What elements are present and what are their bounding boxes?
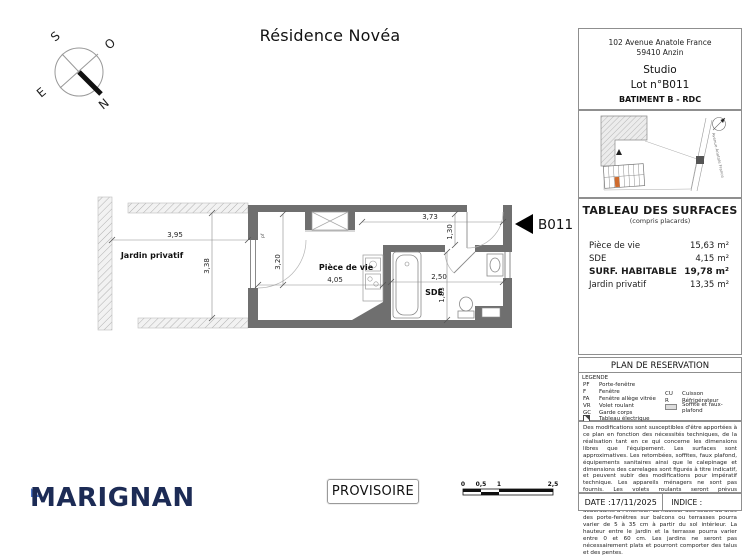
unit-marker: B011 <box>515 214 573 234</box>
scale-tick-25: 2,5 <box>548 481 559 488</box>
row-label: Jardin privatif <box>589 280 646 290</box>
table-row: Jardin privatif 13,35m² <box>579 280 741 293</box>
provisoire-stamp: PROVISOIRE <box>327 479 419 504</box>
site-plan-box: Avenue Anatole France <box>578 110 742 198</box>
highlighted-unit <box>615 177 620 187</box>
legend-label: Soffite et faux-plafond <box>682 402 741 414</box>
surface-table-box: TABLEAU DES SURFACES (compris placards) … <box>578 198 742 355</box>
compass-needle <box>79 72 101 94</box>
site-road <box>691 118 712 191</box>
row-label: SDE <box>589 254 606 264</box>
compass-e: E <box>34 85 49 101</box>
unit-arrow-icon <box>515 214 533 234</box>
street-label: Avenue Anatole France <box>711 132 726 179</box>
indice-field: INDICE : <box>663 494 741 510</box>
legend-label: Fenêtre <box>599 389 620 395</box>
row-label: SURF. HABITABLE <box>589 267 677 277</box>
reservation-title: PLAN DE RESERVATION <box>579 358 741 371</box>
dim-entry-depth: 1,30 <box>446 224 454 240</box>
scale-bar: 0 0,5 1 2,5 <box>458 478 562 500</box>
unit-type: Studio <box>579 64 741 76</box>
legend-abbr: F <box>579 389 599 395</box>
table-row-total: SURF. HABITABLE 19,78m² <box>579 267 741 280</box>
row-label: Pièce de vie <box>589 241 640 251</box>
entrance-door <box>467 212 503 248</box>
disclaimer-box: Des modifications sont susceptibles d'êt… <box>578 421 742 493</box>
row-unit: m² <box>717 280 729 290</box>
site-building-main <box>601 116 647 166</box>
dim-living-width: 4,05 <box>327 276 343 284</box>
bathtub-shower <box>393 252 421 318</box>
address-line2: 59410 Anzin <box>579 48 741 58</box>
row-unit: m² <box>717 254 729 264</box>
scale-tick-05: 0,5 <box>476 481 487 488</box>
pf-label: pf <box>260 233 266 238</box>
scale-tick-0: 0 <box>461 481 465 488</box>
marignan-logo: MARIGNAN <box>30 483 195 513</box>
dim-garden-height: 3,38 <box>203 258 211 274</box>
date-indice-box: DATE :17/11/2025 INDICE : <box>578 493 742 511</box>
legend-abbr: CU <box>665 391 682 397</box>
compass-rose: S O E N <box>25 18 135 122</box>
date-field: DATE :17/11/2025 <box>579 494 663 510</box>
closet <box>305 212 355 231</box>
row-value: 4,15 <box>695 254 714 264</box>
site-building-units <box>603 164 644 189</box>
sde-door <box>445 252 475 273</box>
address-box: 102 Avenue Anatole France 59410 Anzin St… <box>578 28 742 110</box>
reservation-header-box: PLAN DE RESERVATION <box>578 357 742 373</box>
row-unit: m² <box>717 241 729 251</box>
dim-living-height: 3,20 <box>274 254 282 270</box>
dim-sde-width: 2,50 <box>431 273 447 281</box>
provisoire-label: PROVISOIRE <box>332 484 414 499</box>
garden-label: Jardin privatif <box>120 251 184 260</box>
compass-s: S <box>48 29 63 45</box>
wall-corner-detail <box>482 308 500 317</box>
disclaimer-text: Des modifications sont susceptibles d'êt… <box>579 422 741 560</box>
row-value: 13,35 <box>690 280 714 290</box>
legend-label: Fenêtre allège vitrée <box>599 396 656 402</box>
scale-tick-1: 1 <box>497 481 501 488</box>
garden-boundary <box>98 197 248 330</box>
table-row: Pièce de vie 15,63m² <box>579 241 741 254</box>
sde-label: SDE <box>425 288 443 297</box>
site-marker-square <box>696 156 704 164</box>
lot-number: Lot n°B011 <box>579 79 741 91</box>
legend-label: Garde corps <box>599 410 632 416</box>
toilet <box>458 297 474 318</box>
legend-abbr: FA <box>579 396 599 402</box>
dim-garden-width: 3,95 <box>167 231 183 239</box>
compass-n: N <box>96 96 112 112</box>
dim-top-width: 3,73 <box>422 213 438 221</box>
unit-marker-label: B011 <box>538 217 573 233</box>
legend-abbr: VR <box>579 403 599 409</box>
washbasin <box>487 254 503 276</box>
floor-plan-drawing: pf <box>90 188 574 346</box>
row-value: 15,63 <box>690 241 714 251</box>
row-unit: m² <box>716 267 729 277</box>
legend-box: LEGENDE PFPorte-fenêtre FFenêtre FAFenêt… <box>578 372 742 421</box>
row-value: 19,78 <box>684 267 712 277</box>
legend-label: Volet roulant <box>599 403 634 409</box>
legend-title: LEGENDE <box>579 373 741 382</box>
window-right <box>505 252 510 278</box>
compass-o: O <box>102 35 118 52</box>
site-entrance-arrow-icon <box>616 149 622 155</box>
soffit-swatch-icon <box>665 404 677 411</box>
floor-plan-sheet: { "title": "Résidence Novéa", "compass":… <box>0 0 750 530</box>
surface-table-subtitle: (compris placards) <box>579 217 741 225</box>
legend-label: Cuisson <box>682 391 703 397</box>
legend-label: Porte-fenêtre <box>599 382 635 388</box>
legend-abbr: PF <box>579 382 599 388</box>
site-plan-drawing: Avenue Anatole France <box>579 111 741 197</box>
building-floor: BATIMENT B - RDC <box>579 95 741 104</box>
address-line1: 102 Avenue Anatole France <box>579 38 741 48</box>
surface-table-title: TABLEAU DES SURFACES <box>579 204 741 217</box>
legend-right-column: CUCuisson RRéfrigérateur Soffite et faux… <box>665 391 741 411</box>
living-room-label: Pièce de vie <box>319 262 374 272</box>
kitchenette <box>363 255 383 301</box>
page-title: Résidence Novéa <box>170 26 490 45</box>
table-row: SDE 4,15m² <box>579 254 741 267</box>
logo-text: MARIGNAN <box>30 483 195 513</box>
site-compass-icon <box>713 118 726 131</box>
